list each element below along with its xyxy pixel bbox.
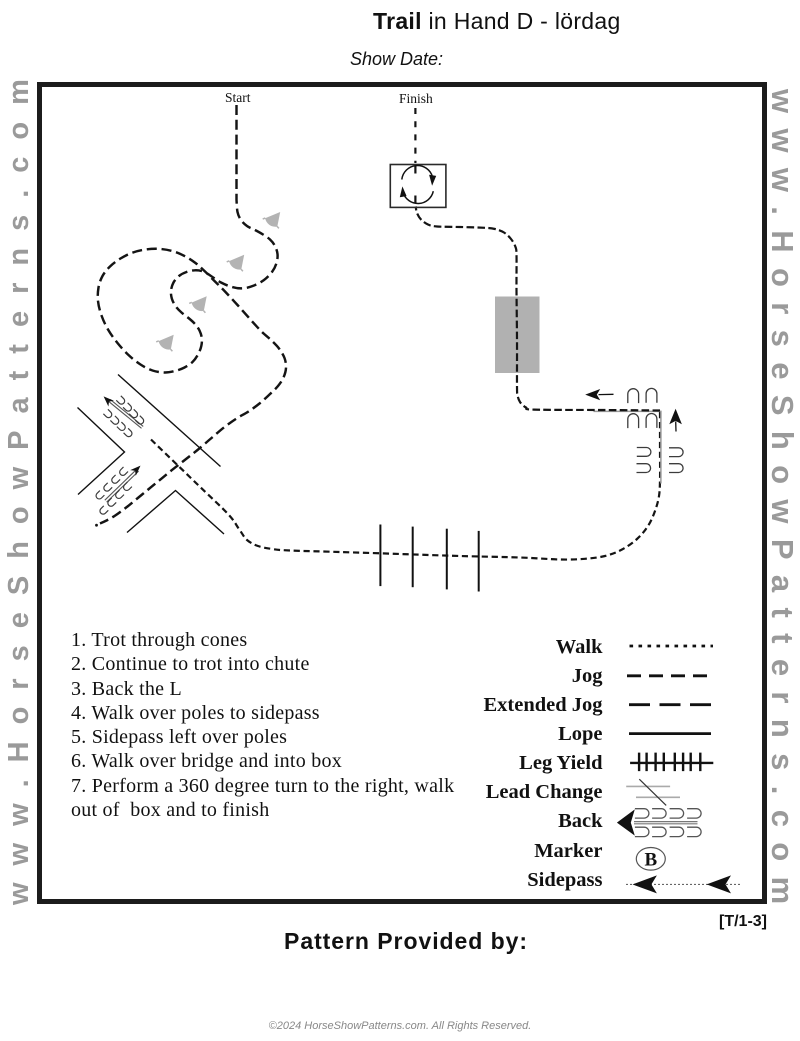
svg-text:B: B [644,850,657,871]
